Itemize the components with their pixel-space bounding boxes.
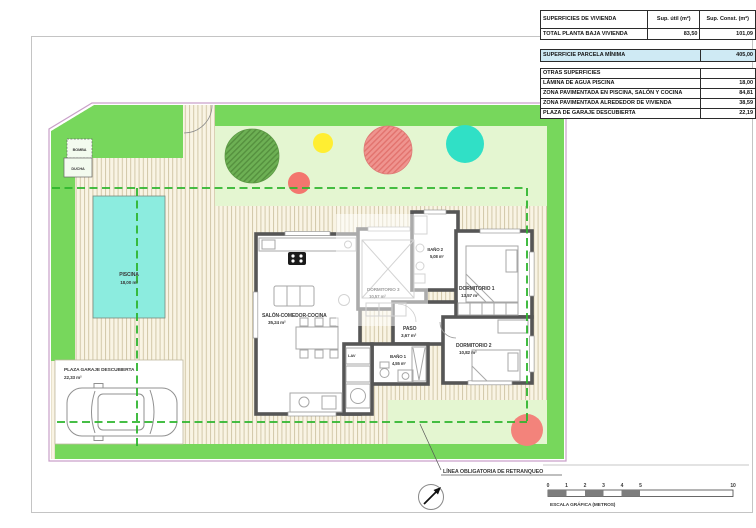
watermark-band	[336, 214, 428, 326]
car-icon	[67, 384, 177, 441]
shrub-yellow-icon	[313, 133, 333, 153]
retranqueo-label: LÍNEA OBLIGATORIA DE RETRANQUEO	[443, 467, 543, 475]
table-row: LÁMINA DE AGUA PISCINA 18,00	[541, 79, 756, 89]
north-arrow-icon	[419, 485, 444, 510]
table-row: ZONA PAVIMENTADA ALREDEDOR DE VIVIENDA 3…	[541, 99, 756, 109]
scale-bar: 0 1 2 3 4 5 10 ESCALA GRÁFICA (METROS)	[547, 483, 736, 508]
otras-row-value: 84,81	[700, 89, 755, 99]
table-parcela-minima: SUPERFICIE PARCELA MÍNIMA 405,00	[540, 49, 756, 62]
table-superficies-vivienda: SUPERFICIES DE VIVIENDA Sup. útil (m²) S…	[540, 10, 756, 40]
dorm1-area: 13,57 m²	[461, 293, 479, 298]
scale-tick-3: 3	[602, 483, 605, 489]
otras-row-label: LÁMINA DE AGUA PISCINA	[541, 79, 701, 89]
tree-green-icon	[225, 129, 279, 183]
otras-row-value: 18,00	[700, 79, 755, 89]
scale-tick-10: 10	[730, 483, 736, 489]
vivienda-row-const: 101,09	[700, 29, 756, 40]
ducha-label: DUCHA	[71, 167, 85, 171]
bano1-name: BAÑO 1	[390, 354, 407, 359]
piscina-name: PISCINA	[119, 272, 139, 278]
otras-row-value: 22,19	[700, 109, 755, 119]
bano1-area: 4,55 m²	[392, 361, 406, 366]
scale-tick-4: 4	[621, 483, 624, 489]
table-otras-superficies: OTRAS SUPERFICIES LÁMINA DE AGUA PISCINA…	[540, 68, 756, 119]
table-row: PLAZA DE GARAJE DESCUBIERTA 22,19	[541, 109, 756, 119]
scale-tick-2: 2	[584, 483, 587, 489]
dorm2-name: DORMITORIO 2	[456, 343, 492, 349]
paso-area: 3,67 m²	[401, 333, 417, 338]
paso-name: PASO	[403, 326, 417, 332]
piscina-area: 18,00 m²	[120, 280, 138, 285]
table-row: ZONA PAVIMENTADA EN PISCINA, SALÓN Y COC…	[541, 89, 756, 99]
otras-row-label: PLAZA DE GARAJE DESCUBIERTA	[541, 109, 701, 119]
dorm2-area: 10,82 m²	[459, 350, 477, 355]
vivienda-title: SUPERFICIES DE VIVIENDA	[541, 11, 648, 29]
parcela-label: SUPERFICIE PARCELA MÍNIMA	[541, 50, 701, 62]
scale-tick-0: 0	[547, 483, 550, 489]
scale-caption: ESCALA GRÁFICA (METROS)	[550, 501, 616, 508]
otras-title-empty	[700, 69, 755, 79]
parcela-value: 405,00	[700, 50, 755, 62]
bano2-area: 5,08 m²	[430, 254, 444, 259]
tree-teal-icon	[446, 125, 484, 163]
vivienda-row-util: 83,50	[647, 29, 699, 40]
bomba-label: BOMBA	[73, 148, 87, 152]
vivienda-row-label: TOTAL PLANTA BAJA VIVIENDA	[541, 29, 648, 40]
salon-area: 35,24 m²	[268, 320, 286, 325]
scale-tick-5: 5	[639, 483, 642, 489]
bano2-name: BAÑO 2	[427, 247, 444, 252]
salon-name: SALÓN-COMEDOR-COCINA	[262, 311, 327, 319]
otras-row-label: ZONA PAVIMENTADA ALREDEDOR DE VIVIENDA	[541, 99, 701, 109]
otras-title: OTRAS SUPERFICIES	[541, 69, 701, 79]
garaje-area: 22,33 m²	[64, 375, 82, 380]
parcel-content: BOMBA DUCHA	[45, 100, 575, 465]
vivienda-col-util: Sup. útil (m²)	[647, 11, 699, 29]
shrub-red-icon	[288, 172, 310, 194]
lav-name: LAV	[348, 353, 356, 358]
otras-row-value: 38,59	[700, 99, 755, 109]
otras-row-label: ZONA PAVIMENTADA EN PISCINA, SALÓN Y COC…	[541, 89, 701, 99]
dorm1-name: DORMITORIO 1	[459, 286, 495, 292]
vivienda-col-const: Sup. Const. (m²)	[700, 11, 756, 29]
pool	[93, 196, 165, 318]
scale-tick-1: 1	[565, 483, 568, 489]
garaje-name: PLAZA GARAJE DESCUBIERTA	[64, 367, 135, 373]
cooktop-icon	[288, 252, 306, 265]
tree-salmon-icon	[364, 126, 412, 174]
